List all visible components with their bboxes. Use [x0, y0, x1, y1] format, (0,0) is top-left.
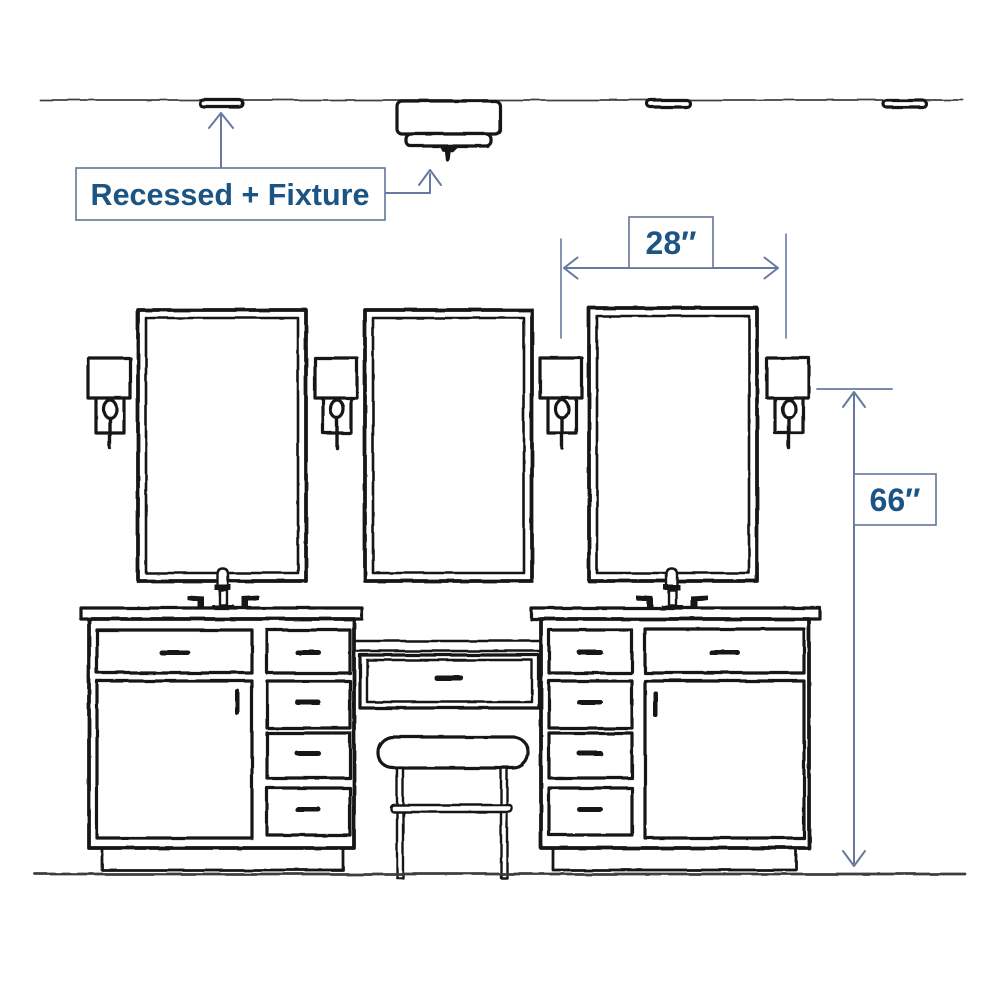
svg-text:Recessed + Fixture: Recessed + Fixture: [91, 178, 370, 212]
svg-text:28″: 28″: [646, 225, 697, 261]
svg-text:66″: 66″: [870, 482, 921, 518]
